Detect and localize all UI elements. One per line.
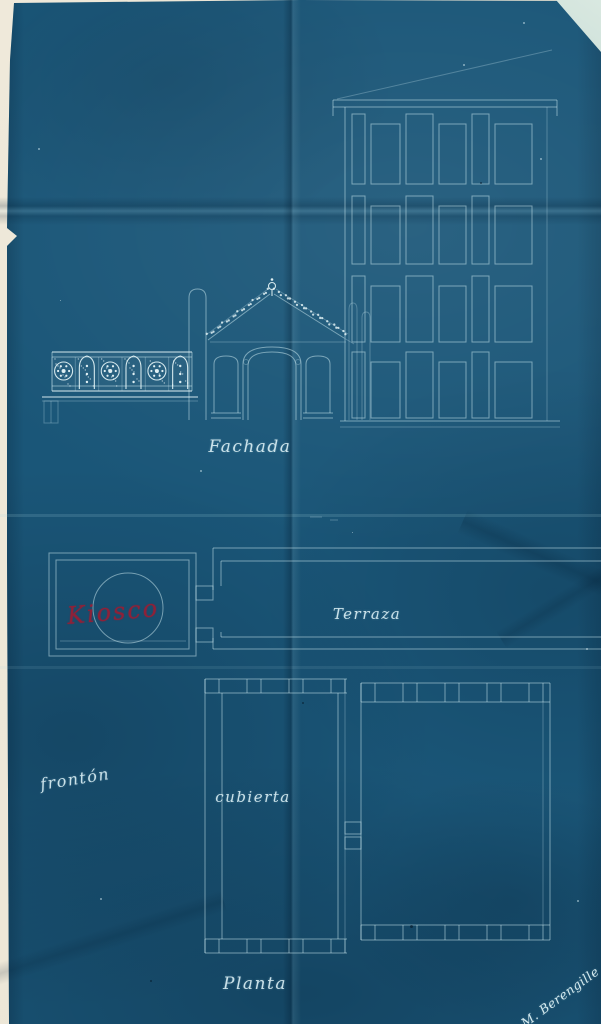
blueprint-line-art — [0, 0, 601, 1024]
blueprint-sheet: Fachada Terraza Kiosco frontón cubierta … — [0, 0, 601, 1024]
terrace-plan — [213, 548, 601, 649]
covered-hall-plan — [205, 679, 550, 953]
kiosk-elevation — [189, 278, 370, 420]
ornamental-railing — [42, 352, 198, 423]
building-elevation — [333, 50, 560, 427]
label-cubierta: cubierta — [215, 788, 290, 806]
label-fachada: Fachada — [209, 437, 292, 457]
elevation-tick-marks — [310, 517, 338, 520]
label-planta: Planta — [223, 974, 287, 994]
column-tick-marks — [205, 679, 543, 953]
window-grid — [352, 114, 532, 418]
label-terraza: Terraza — [333, 605, 401, 623]
